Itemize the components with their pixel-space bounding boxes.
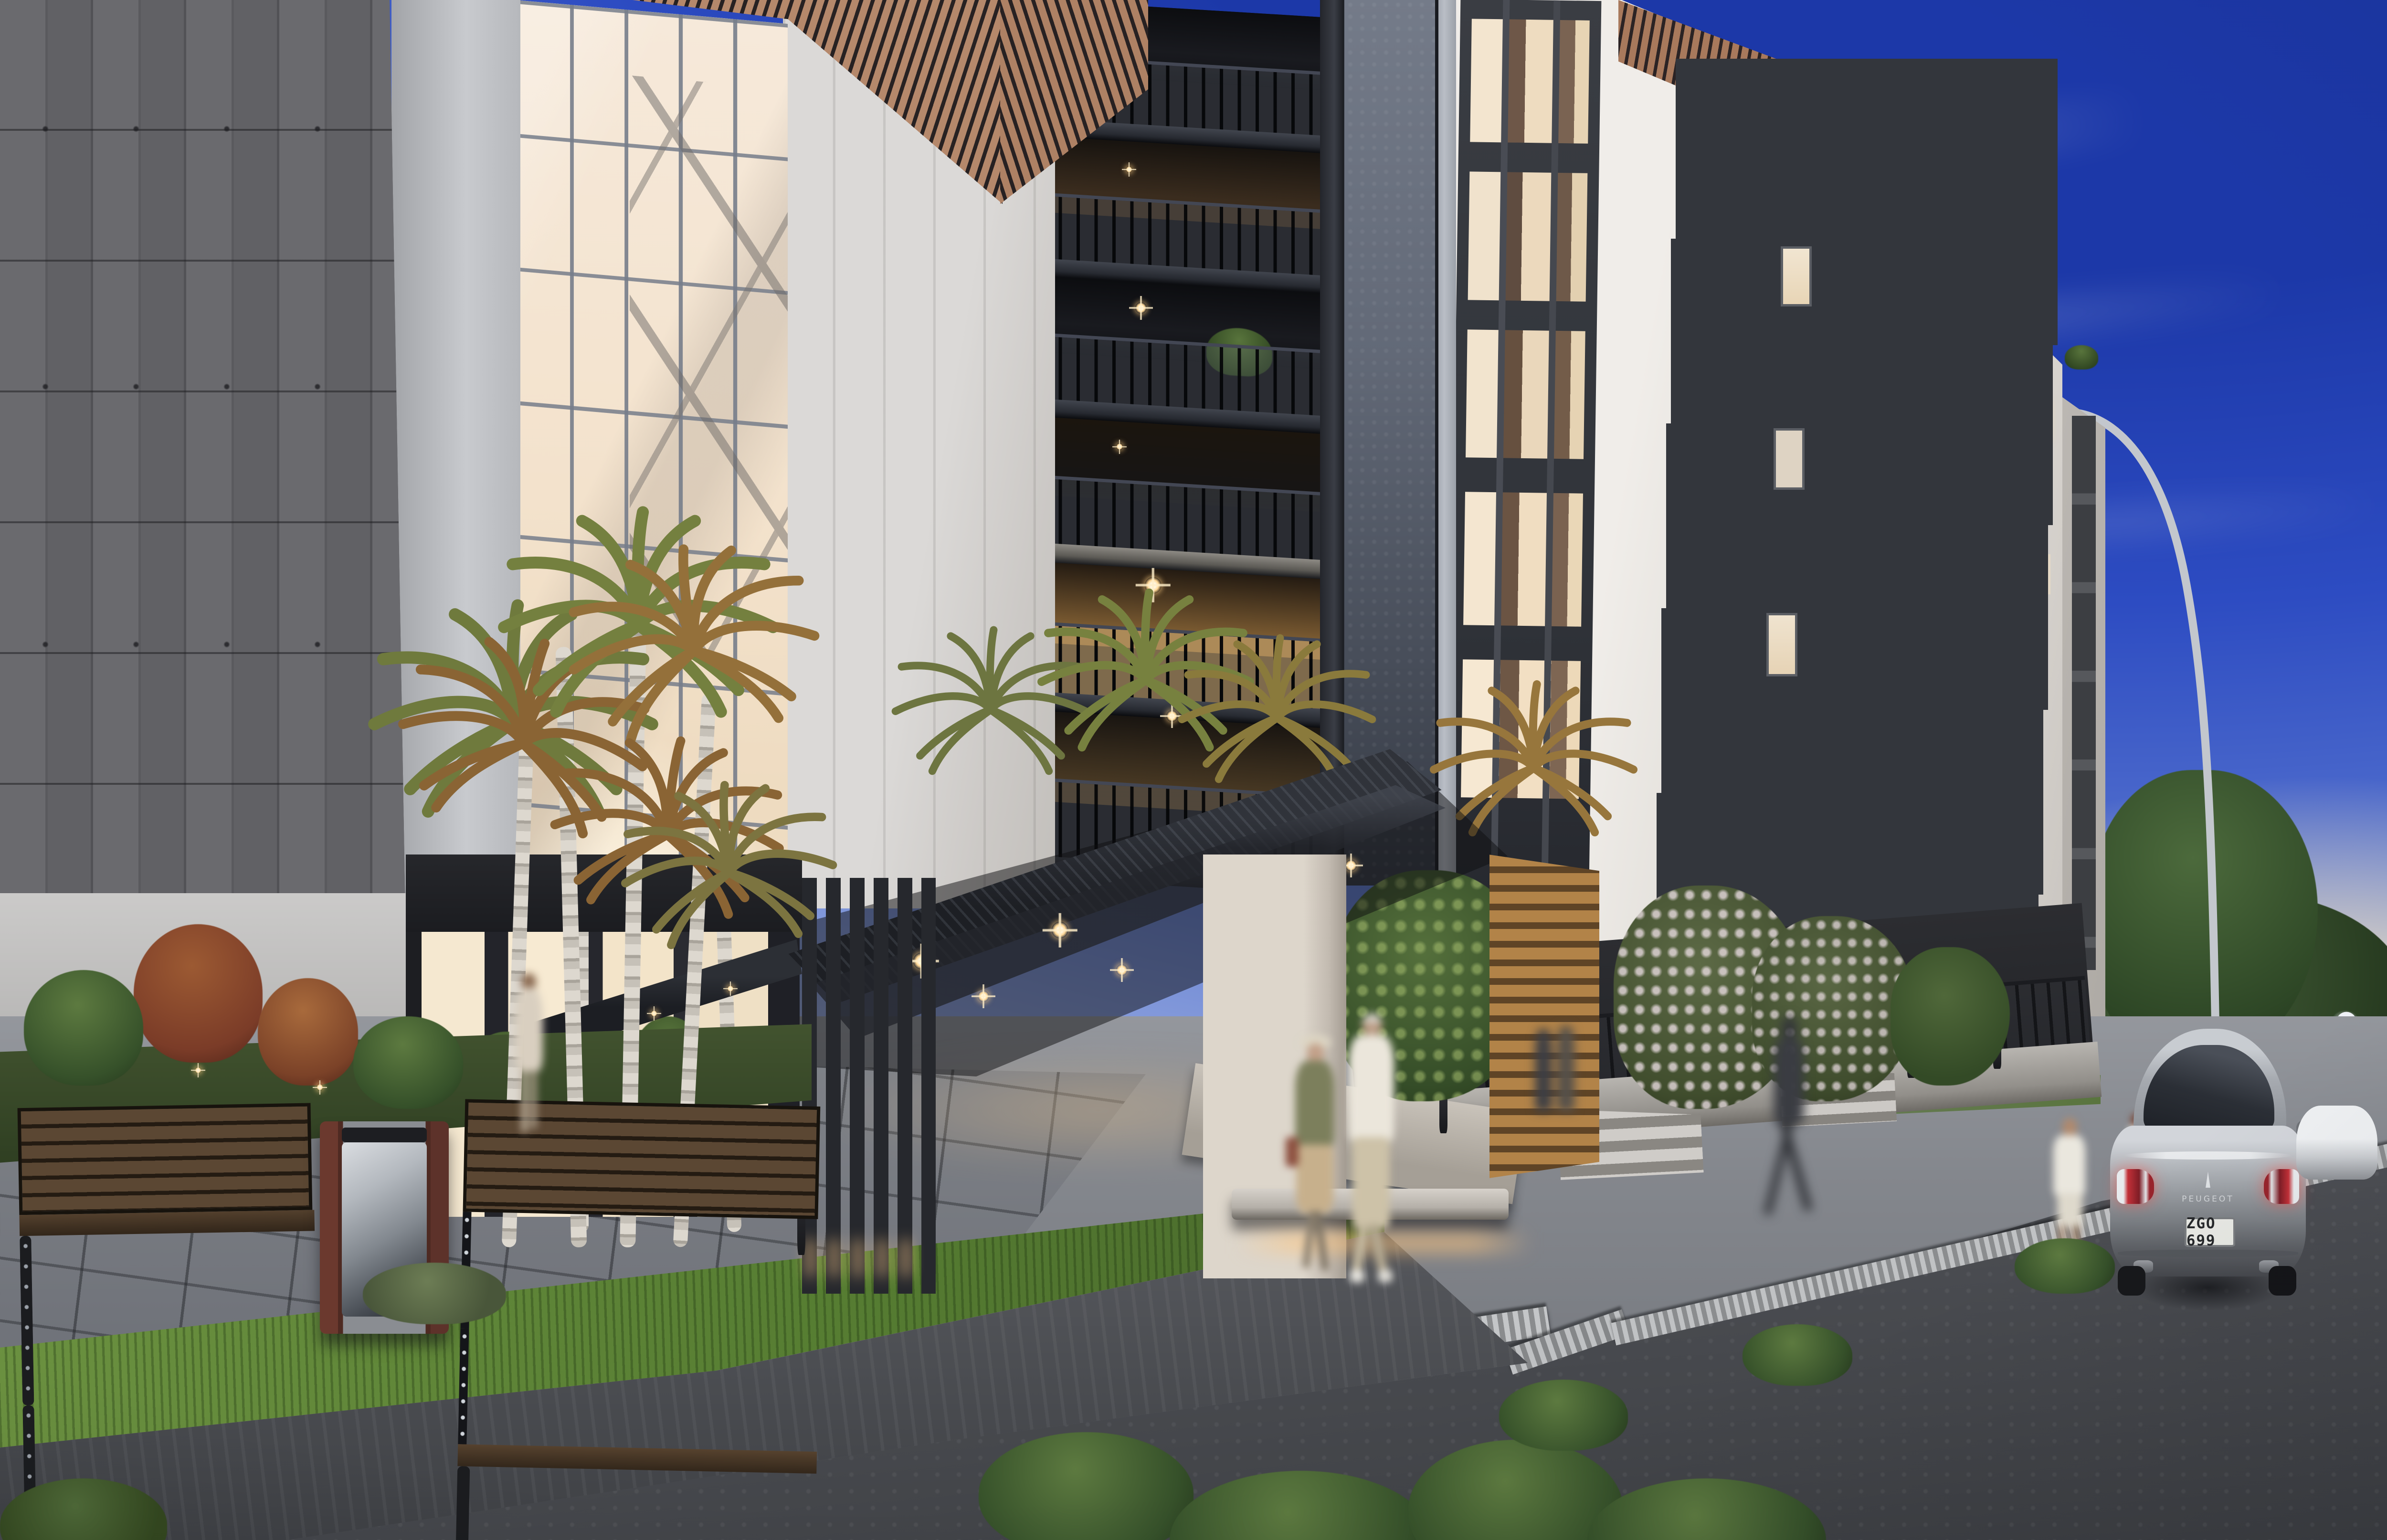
garden-shrub bbox=[24, 970, 143, 1086]
balcony-floor bbox=[1041, 417, 1341, 580]
balcony-downlight bbox=[1122, 162, 1136, 177]
left-panel-wall bbox=[0, 0, 406, 939]
strip-floor bbox=[1470, 19, 1590, 144]
car-license-plate: ZGO 699 bbox=[2185, 1217, 2235, 1247]
head bbox=[521, 973, 536, 990]
architectural-rendering-scene: PEUGEOT ZGO 699 bbox=[0, 0, 2387, 1540]
tower-window bbox=[1781, 246, 1812, 306]
strip-floor bbox=[1463, 492, 1584, 627]
canopy-downlight bbox=[647, 1006, 661, 1021]
bench-frame-left bbox=[20, 1236, 34, 1405]
garden-shrub bbox=[353, 1016, 463, 1109]
head bbox=[1782, 1016, 1797, 1039]
coat bbox=[515, 988, 543, 1072]
canopy-downlight bbox=[1043, 913, 1077, 948]
head bbox=[2062, 1118, 2077, 1137]
torso bbox=[1774, 1037, 1804, 1125]
balcony-downlight bbox=[1129, 296, 1153, 320]
bench-seat bbox=[19, 1210, 315, 1236]
red-cordyline bbox=[134, 924, 263, 1063]
tower-window bbox=[1774, 428, 1805, 490]
handbag bbox=[1286, 1137, 1299, 1167]
roadside-shrub bbox=[1743, 1324, 1852, 1386]
shirt bbox=[1349, 1035, 1394, 1143]
balcony-floor bbox=[1041, 276, 1341, 435]
license-plate-text: ZGO 699 bbox=[2186, 1215, 2233, 1249]
bench-back bbox=[18, 1103, 313, 1215]
parked-car: PEUGEOT ZGO 699 bbox=[2110, 1029, 2306, 1298]
tshirt bbox=[2053, 1135, 2085, 1197]
balcony-floor bbox=[1041, 136, 1341, 295]
roadside-shrub bbox=[1499, 1380, 1628, 1450]
legs bbox=[1351, 1223, 1369, 1275]
park-bench bbox=[18, 1103, 307, 1301]
residents-at-fence bbox=[1532, 1026, 1580, 1115]
white-car-distant bbox=[2296, 1106, 2377, 1180]
figure bbox=[1557, 1026, 1574, 1112]
canopy-downlight bbox=[1110, 958, 1134, 982]
lavender-planting bbox=[363, 1263, 506, 1324]
tower-window bbox=[1766, 613, 1797, 676]
wing-3-balcony-slot bbox=[2072, 416, 2096, 970]
red-cordyline bbox=[258, 978, 358, 1086]
figure bbox=[1535, 1029, 1552, 1111]
bin-top-slot bbox=[342, 1128, 427, 1142]
shoe bbox=[1378, 1269, 1393, 1283]
head bbox=[1307, 1044, 1324, 1063]
legs bbox=[521, 1070, 528, 1132]
trousers bbox=[1352, 1137, 1390, 1229]
strip-floor bbox=[1468, 172, 1588, 302]
garden-uplight bbox=[313, 1080, 327, 1095]
roadside-shrub bbox=[2015, 1238, 2115, 1294]
palm-tree bbox=[601, 760, 855, 965]
garden-uplight bbox=[191, 1063, 205, 1077]
jogger-silhouette bbox=[1766, 1016, 1814, 1224]
car-wheel bbox=[2269, 1266, 2296, 1296]
legs bbox=[531, 1070, 537, 1129]
timber-louvre-wall bbox=[1489, 854, 1599, 1178]
fin-base-glow bbox=[807, 1240, 926, 1276]
strip-floor bbox=[1466, 329, 1586, 459]
car-wheel bbox=[2118, 1266, 2145, 1296]
canopy-downlight bbox=[972, 984, 995, 1008]
car-bumper-line bbox=[2118, 1250, 2298, 1257]
elderly-couple-man bbox=[1339, 1013, 1406, 1283]
rooftop-shrub bbox=[2065, 345, 2098, 370]
car-trunk-highlight bbox=[2124, 1151, 2292, 1160]
pedestrian-woman-lobby bbox=[508, 973, 551, 1135]
car-badge-text: PEUGEOT bbox=[2110, 1194, 2306, 1204]
legs bbox=[1780, 1121, 1812, 1211]
shoe bbox=[1350, 1269, 1364, 1283]
head bbox=[1362, 1013, 1382, 1036]
balcony-downlight bbox=[1112, 440, 1127, 454]
canopy-downlight bbox=[723, 981, 738, 996]
jacket bbox=[1295, 1061, 1335, 1150]
skirt bbox=[1296, 1145, 1333, 1214]
legs bbox=[1313, 1211, 1329, 1270]
shorts bbox=[2057, 1193, 2082, 1227]
